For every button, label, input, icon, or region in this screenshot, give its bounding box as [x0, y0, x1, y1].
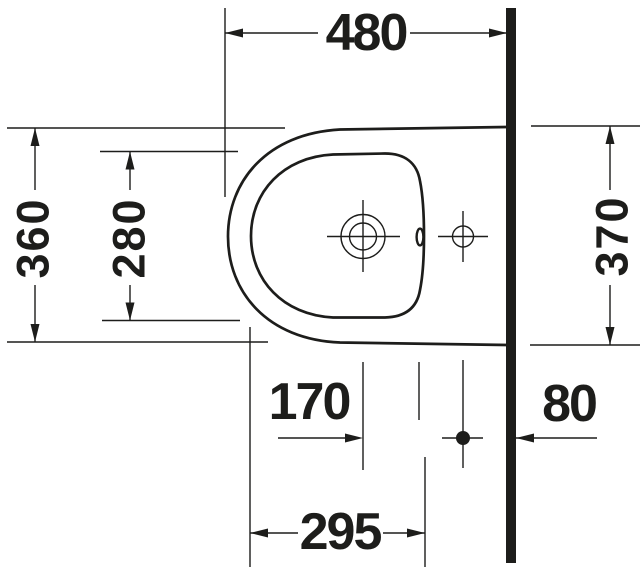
arrowhead-170-right — [345, 434, 363, 443]
drain-point — [442, 431, 483, 445]
dimension-480: 480 — [225, 4, 507, 62]
bidet-plan-view-drawing: 480 360 280 370 170 80 — [0, 0, 642, 572]
dim-label-295: 295 — [300, 503, 382, 561]
dimension-370: 370 — [587, 126, 638, 345]
arrowhead-370-up — [606, 126, 615, 144]
water-inlet-oval — [417, 229, 424, 246]
bidet-inner-rim — [251, 154, 424, 318]
dimension-295: 295 — [250, 503, 425, 561]
technical-drawing-canvas: 480 360 280 370 170 80 — [0, 0, 642, 572]
dimension-80: 80 — [516, 375, 597, 443]
dim-label-370: 370 — [587, 195, 638, 276]
dim-label-360: 360 — [8, 197, 59, 278]
arrowhead-360-up — [31, 128, 40, 146]
arrowhead-295-right — [407, 529, 425, 538]
dim-label-80: 80 — [542, 375, 596, 433]
arrowhead-80-left — [516, 434, 534, 443]
arrowhead-295-left — [250, 529, 268, 538]
arrowhead-480-right — [489, 29, 507, 38]
dimension-360: 360 — [8, 128, 59, 342]
deck-hole — [438, 211, 488, 262]
dimension-280: 280 — [104, 152, 155, 321]
wall-line — [506, 8, 516, 563]
dim-label-480: 480 — [326, 4, 407, 62]
arrowhead-280-up — [126, 152, 135, 170]
arrowhead-280-down — [126, 303, 135, 321]
arrowhead-370-down — [606, 327, 615, 345]
extension-lines — [7, 8, 640, 567]
dim-label-170: 170 — [269, 373, 350, 431]
dim-label-280: 280 — [104, 197, 155, 278]
arrowhead-480-left — [225, 29, 243, 38]
drain-point-marker — [456, 431, 470, 445]
tap-hole — [327, 200, 400, 272]
arrowhead-360-down — [31, 324, 40, 342]
dimension-170: 170 — [269, 373, 363, 443]
